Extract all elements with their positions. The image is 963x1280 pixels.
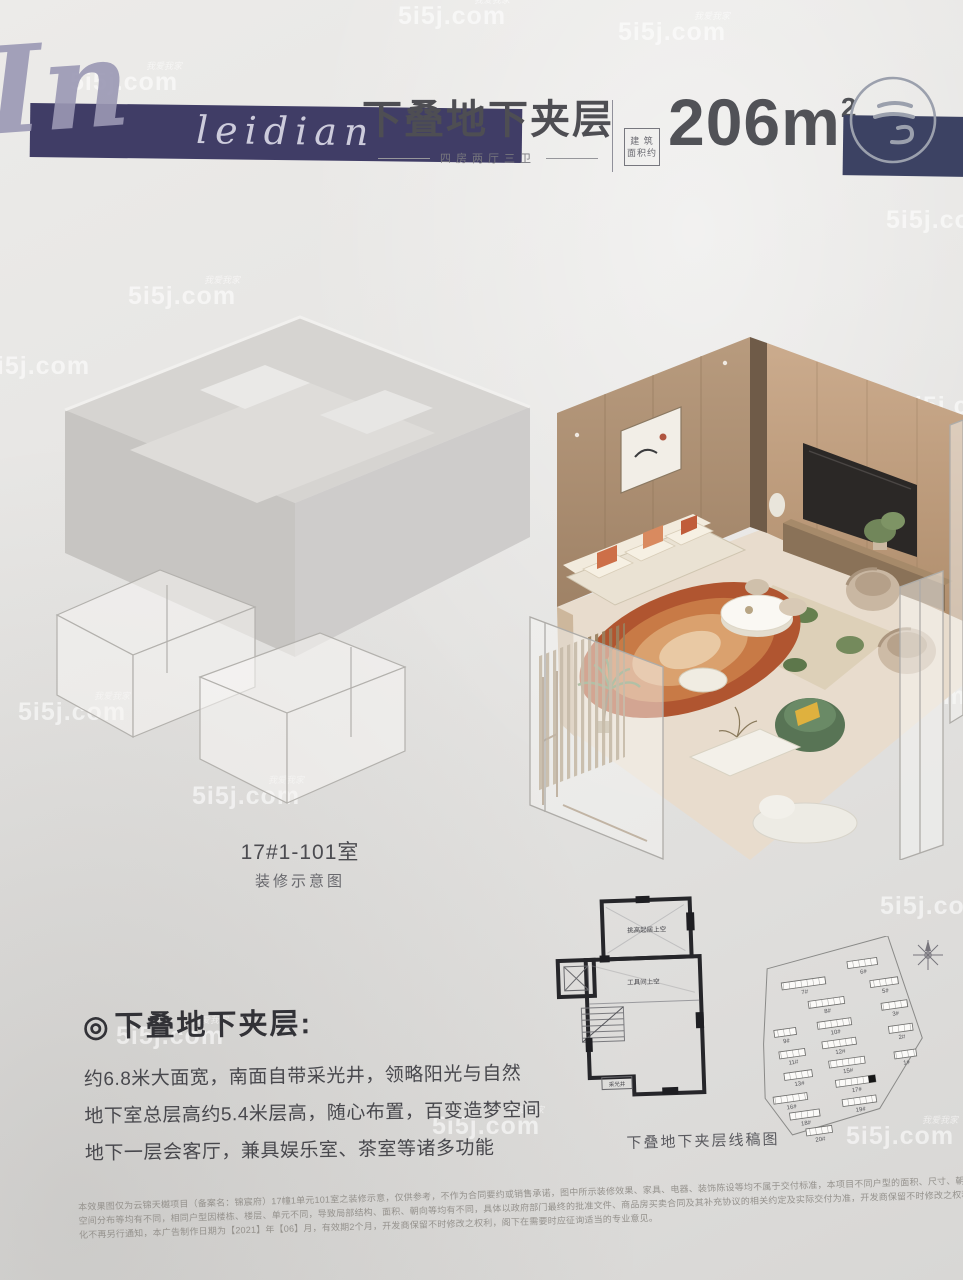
watermark: 我爱我家5i5j.com — [618, 18, 726, 47]
building-label: 9# — [783, 1038, 791, 1045]
building-label: 12# — [835, 1049, 846, 1056]
light-well-label: 采光井 — [609, 1080, 626, 1089]
floorplan-3d-render — [55, 285, 963, 860]
decor-vase — [769, 493, 785, 517]
area-label-box: 建 筑 面积约 — [624, 128, 660, 166]
pouf — [745, 579, 769, 595]
feature-block: ◎下叠地下夹层: 约6.8米大面宽，南面自带采光井，领略阳光与自然 地下室总层高… — [83, 997, 565, 1173]
building-label: 18# — [801, 1120, 812, 1127]
site-plan: 7# 6# 8# 5# 9# 10# 3# 11# 12# 13# 15# 2#… — [750, 936, 962, 1150]
watermark: 我爱我家5i5j.com — [398, 2, 506, 31]
watermark: 我爱我家5i5j.com — [886, 206, 963, 235]
developer-logo-icon — [843, 70, 943, 170]
area-value: 206m2 — [668, 84, 857, 160]
unit-number: 17#1-101室 — [150, 836, 450, 866]
room-label-upper: 挑高起居上空 — [627, 924, 667, 934]
building-label: 20# — [815, 1136, 826, 1143]
building-label: 7# — [801, 989, 809, 996]
bullseye-icon: ◎ — [83, 1011, 111, 1043]
title-divider — [612, 100, 613, 172]
building-label: 11# — [788, 1059, 799, 1066]
watermark: 5i5j.com — [880, 892, 963, 921]
building-label: 10# — [830, 1029, 841, 1036]
building-label: 1# — [903, 1060, 911, 1067]
page-title: 下叠地下夹层 — [362, 96, 614, 144]
feature-heading: ◎下叠地下夹层: — [83, 997, 564, 1046]
building-label: 2# — [898, 1034, 906, 1041]
feature-line: 地下一层会客厅，兼具娱乐室、茶室等诸多功能 — [85, 1129, 565, 1173]
room-config-subtitle: 四房两厅三卫 — [440, 150, 536, 166]
highlighted-unit-marker — [868, 1075, 876, 1083]
pouf — [779, 598, 807, 616]
brand-initial-script: In — [0, 23, 133, 153]
building-label: 5# — [882, 988, 890, 995]
compass-icon — [913, 940, 943, 970]
unit-caption: 装修示意图 — [150, 870, 450, 891]
unit-label-block: 17#1-101室 装修示意图 — [150, 836, 450, 891]
plan-title-block: 下叠地下夹层 四房两厅三卫 — [362, 96, 614, 166]
subtitle-row: 四房两厅三卫 — [362, 150, 614, 166]
room-label-mid: 工具间上空 — [627, 976, 660, 986]
feature-lines: 约6.8米大面宽，南面自带采光井，领略阳光与自然 地下室总层高约5.4米层高，随… — [84, 1055, 566, 1173]
building-label: 3# — [892, 1011, 900, 1018]
building-label: 16# — [786, 1104, 797, 1111]
disclaimer: 本效果图仅为云锦天樾项目（备案名：锦宸府）17幢1单元101室之装修示意，仅供参… — [78, 1174, 963, 1242]
ghost-structure — [57, 317, 530, 803]
building-label: 6# — [860, 969, 868, 976]
rule-right — [546, 158, 598, 159]
building-label: 8# — [824, 1008, 832, 1015]
building-label: 15# — [843, 1068, 854, 1075]
building-label: 13# — [794, 1081, 805, 1088]
rule-left — [378, 158, 430, 159]
building-label: 17# — [852, 1087, 863, 1094]
poster-photo: 我爱我家5i5j.com 我爱我家5i5j.com 我爱我家5i5j.com 我… — [0, 0, 963, 1280]
swivel-chair — [846, 569, 900, 611]
